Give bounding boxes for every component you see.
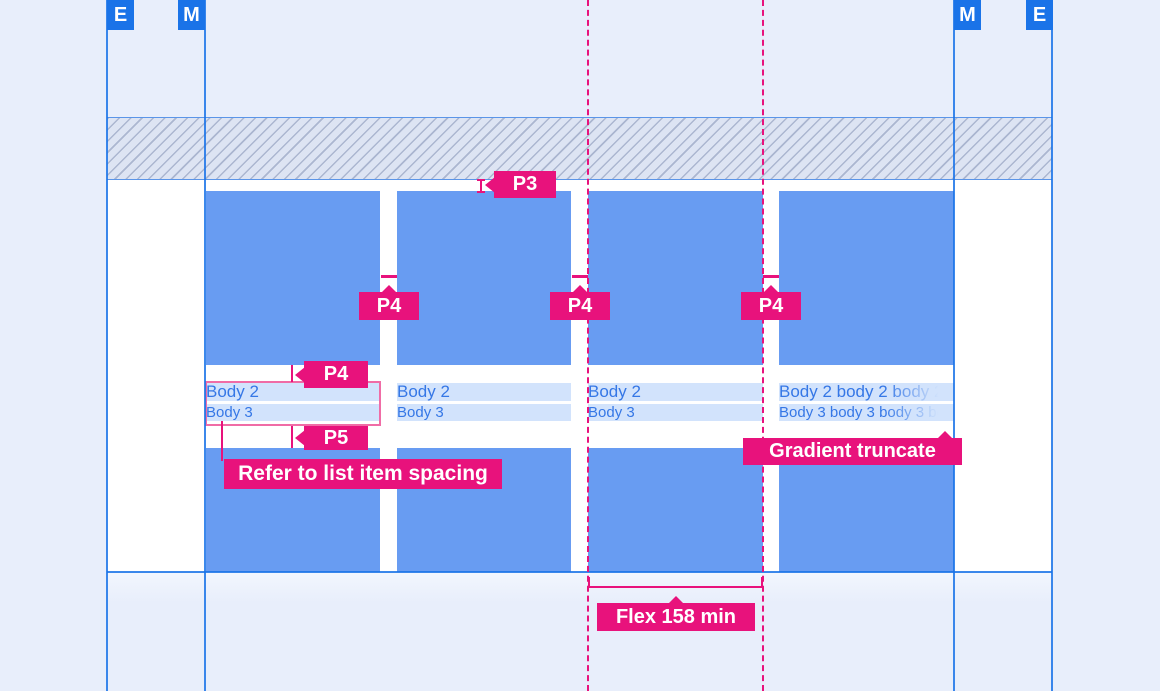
bottom-gradient [107,573,1052,603]
spacing-chip-p4-gutter3: P4 [741,292,801,320]
gutter-measure-line [381,275,397,278]
spacing-chip-p4-text: P4 [304,361,368,388]
card-image [588,191,763,365]
card-body3-text: Body 3 [397,404,571,421]
p4-measure-tick [291,365,293,382]
chip-label: Flex 158 min [616,606,736,629]
card-body3-text: Body 3 [588,404,763,421]
left-edge-label: E [107,0,134,30]
chip-pointer-left [485,177,495,193]
left-edge-keyline [106,0,108,691]
card-image [779,191,954,365]
card-image [206,191,380,365]
gutter-measure-line [572,275,588,278]
right-margin-keyline [953,0,955,691]
left-margin-label: M [178,0,205,30]
chip-pointer-up [937,431,953,439]
right-margin-label: M [954,0,981,30]
spacing-chip-p3: P3 [494,171,556,198]
card-body2-text: Body 2 [588,383,763,401]
p3-measure-cap [477,191,485,193]
chip-label: P4 [568,295,592,318]
spacing-chip-p4-gutter1: P4 [359,292,419,320]
card-body2-text: Body 2 [397,383,571,401]
spacing-chip-p4-gutter2: P4 [550,292,610,320]
right-edge-keyline [1051,0,1053,691]
card-image [588,448,763,572]
chip-pointer-up [763,285,779,293]
chip-pointer-up [668,596,684,604]
chip-label: P3 [513,173,537,196]
p5-measure-tick [291,426,293,448]
redline-spec-diagram: E M M E Body 2 Body 3 Body 2 Body 3 Body… [0,0,1160,691]
chip-pointer-up [381,285,397,293]
content-bottom-keyline [107,571,1052,573]
gutter-measure-line [763,275,779,278]
flex-min-width-note: Flex 158 min [597,603,755,631]
p3-measure-cap [477,179,485,181]
chip-label: P4 [759,295,783,318]
gradient-fade-overlay [884,404,954,421]
note-connector-line [221,421,223,461]
chip-label: P5 [324,427,348,450]
chip-label: Refer to list item spacing [238,462,488,486]
hatched-appbar-band [107,117,1052,180]
chip-pointer-left [295,367,305,383]
chip-label: Gradient truncate [769,440,936,463]
card-image [779,448,954,572]
spacing-chip-p5: P5 [304,426,368,450]
gradient-truncate-note: Gradient truncate [743,438,962,465]
card-image [397,191,571,365]
chip-label: P4 [377,295,401,318]
flex-bracket-line [588,586,763,588]
chip-label: P4 [324,363,348,386]
chip-pointer-left [295,430,305,446]
list-item-spacing-note: Refer to list item spacing [224,459,502,489]
chip-pointer-up [572,285,588,293]
gradient-fade-overlay [884,383,954,401]
left-margin-keyline [204,0,206,691]
right-edge-label: E [1026,0,1053,30]
